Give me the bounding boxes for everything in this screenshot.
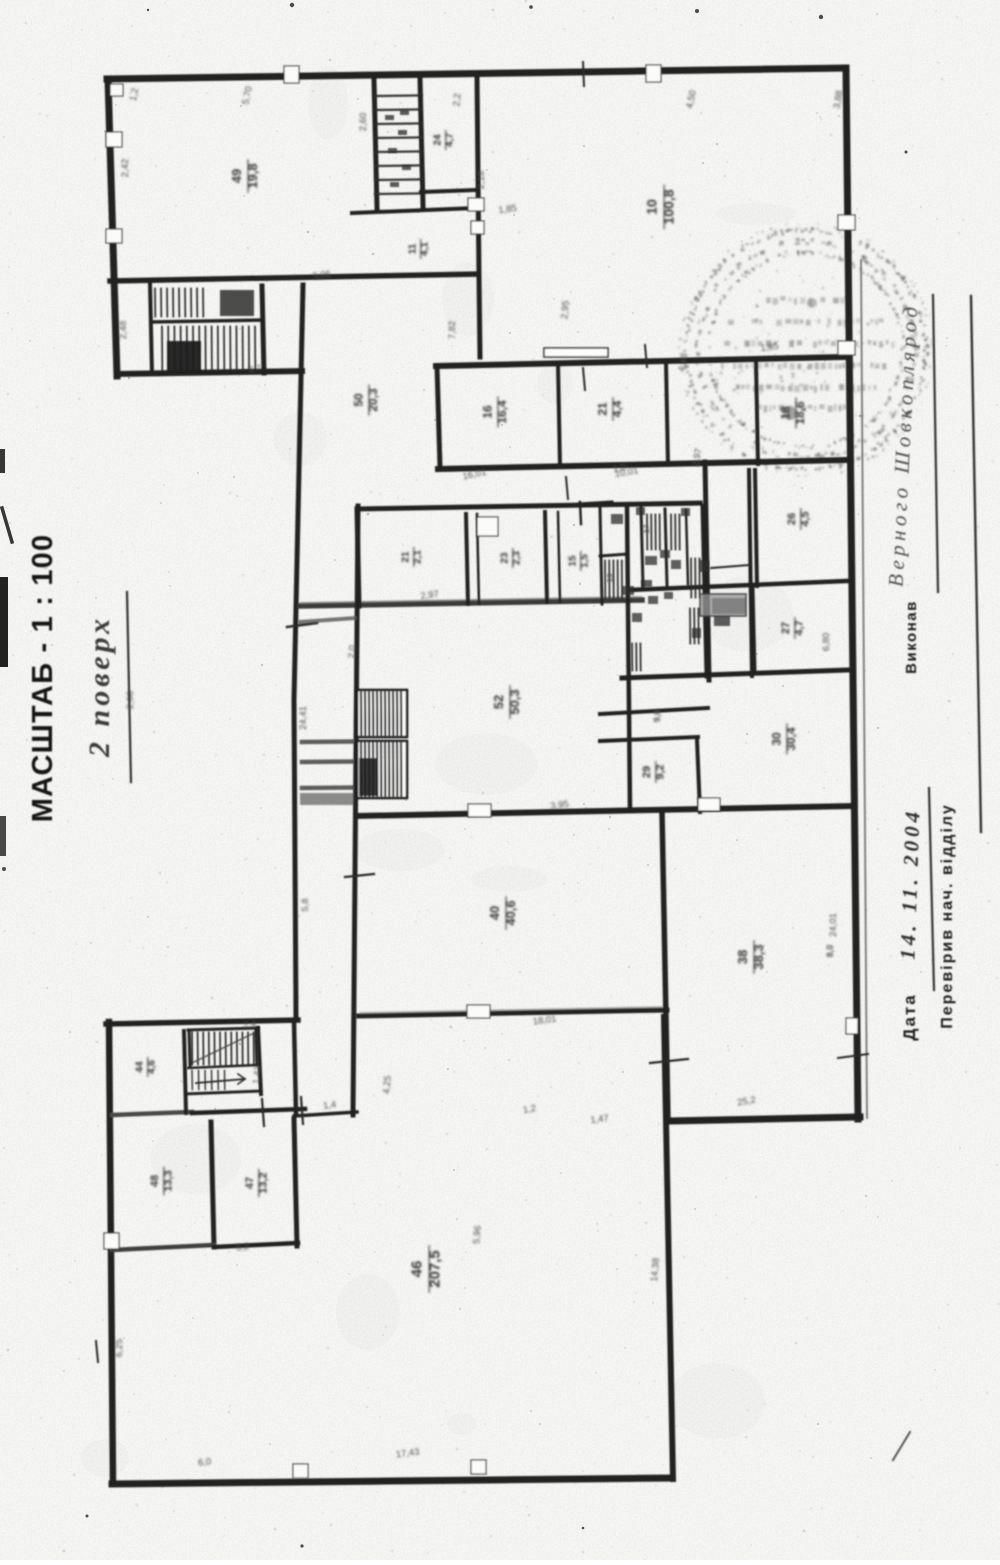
svg-text:МАСШТАБ - 1 : 100: МАСШТАБ - 1 : 100 — [27, 534, 59, 823]
svg-text:49: 49 — [229, 169, 244, 183]
svg-text:10: 10 — [644, 199, 660, 215]
svg-text:13: 13 — [606, 573, 615, 582]
svg-text:1,43: 1,43 — [251, 1065, 264, 1084]
svg-text:19,8: 19,8 — [245, 163, 260, 188]
svg-text:21: 21 — [401, 551, 412, 563]
svg-text:1,2: 1,2 — [522, 1103, 537, 1116]
svg-text:26: 26 — [786, 513, 798, 525]
svg-text:46: 46 — [408, 1261, 425, 1278]
svg-text:5,96: 5,96 — [471, 1225, 484, 1244]
svg-text:52: 52 — [491, 695, 506, 709]
svg-text:16,4: 16,4 — [495, 400, 509, 424]
svg-text:1,2: 1,2 — [128, 87, 141, 102]
svg-text:18,6: 18,6 — [793, 401, 807, 425]
svg-text:47: 47 — [244, 1177, 256, 1189]
svg-text:29: 29 — [641, 766, 653, 778]
svg-text:50,3: 50,3 — [507, 689, 522, 714]
svg-text:5,2: 5,2 — [235, 1241, 250, 1254]
svg-text:14,38: 14,38 — [649, 1257, 662, 1282]
svg-text:9,6: 9,6 — [652, 710, 662, 723]
svg-text:30: 30 — [770, 732, 784, 746]
svg-text:30,4: 30,4 — [784, 727, 798, 751]
svg-text:100,8: 100,8 — [661, 189, 677, 224]
svg-text:3,7: 3,7 — [247, 363, 262, 376]
svg-text:1,4: 1,4 — [322, 1099, 337, 1112]
svg-text:4,4: 4,4 — [610, 400, 624, 417]
svg-text:24,41: 24,41 — [298, 706, 309, 730]
svg-text:6,80: 6,80 — [821, 633, 832, 652]
svg-text:48: 48 — [149, 1175, 161, 1187]
svg-text:2,0: 2,0 — [346, 645, 358, 659]
svg-text:38: 38 — [735, 950, 750, 964]
svg-text:24,01: 24,01 — [828, 913, 839, 937]
svg-text:Виконав: Виконав — [903, 600, 920, 674]
svg-text:Дата: Дата — [900, 993, 919, 1040]
svg-text:16: 16 — [481, 405, 495, 419]
svg-text:15: 15 — [568, 555, 579, 567]
svg-text:23: 23 — [500, 552, 511, 564]
svg-text:6,0: 6,0 — [197, 1456, 212, 1469]
svg-text:2,42: 2,42 — [120, 159, 131, 178]
svg-text:24: 24 — [433, 134, 444, 146]
svg-text:50: 50 — [352, 393, 366, 407]
svg-text:8,0: 8,0 — [825, 945, 835, 958]
svg-text:17: 17 — [642, 524, 651, 533]
svg-text:38,3: 38,3 — [751, 944, 766, 969]
svg-text:2 поверх: 2 поверх — [83, 615, 116, 758]
svg-text:18: 18 — [779, 406, 793, 420]
svg-text:27: 27 — [780, 622, 792, 634]
svg-text:2,18: 2,18 — [476, 171, 487, 190]
svg-text:2,60: 2,60 — [358, 113, 369, 132]
svg-text:6,25: 6,25 — [114, 1339, 125, 1358]
svg-text:4,25: 4,25 — [381, 1075, 394, 1094]
svg-text:1,0: 1,0 — [612, 462, 627, 475]
svg-text:2,95: 2,95 — [559, 300, 572, 319]
svg-text:11: 11 — [408, 243, 419, 254]
svg-text:2,4: 2,4 — [242, 1019, 257, 1032]
svg-text:21: 21 — [596, 402, 610, 416]
svg-text:5,8: 5,8 — [300, 898, 311, 911]
svg-text:20,3: 20,3 — [366, 388, 380, 412]
svg-text:7,82: 7,82 — [447, 321, 458, 340]
svg-text:40,6: 40,6 — [503, 900, 518, 925]
svg-text:44: 44 — [135, 1061, 146, 1073]
svg-text:2,2: 2,2 — [451, 93, 463, 107]
svg-text:2,48: 2,48 — [118, 321, 129, 340]
svg-text:Перевірив нач. відділу: Перевірив нач. відділу — [939, 803, 956, 1028]
svg-text:40: 40 — [487, 906, 502, 920]
